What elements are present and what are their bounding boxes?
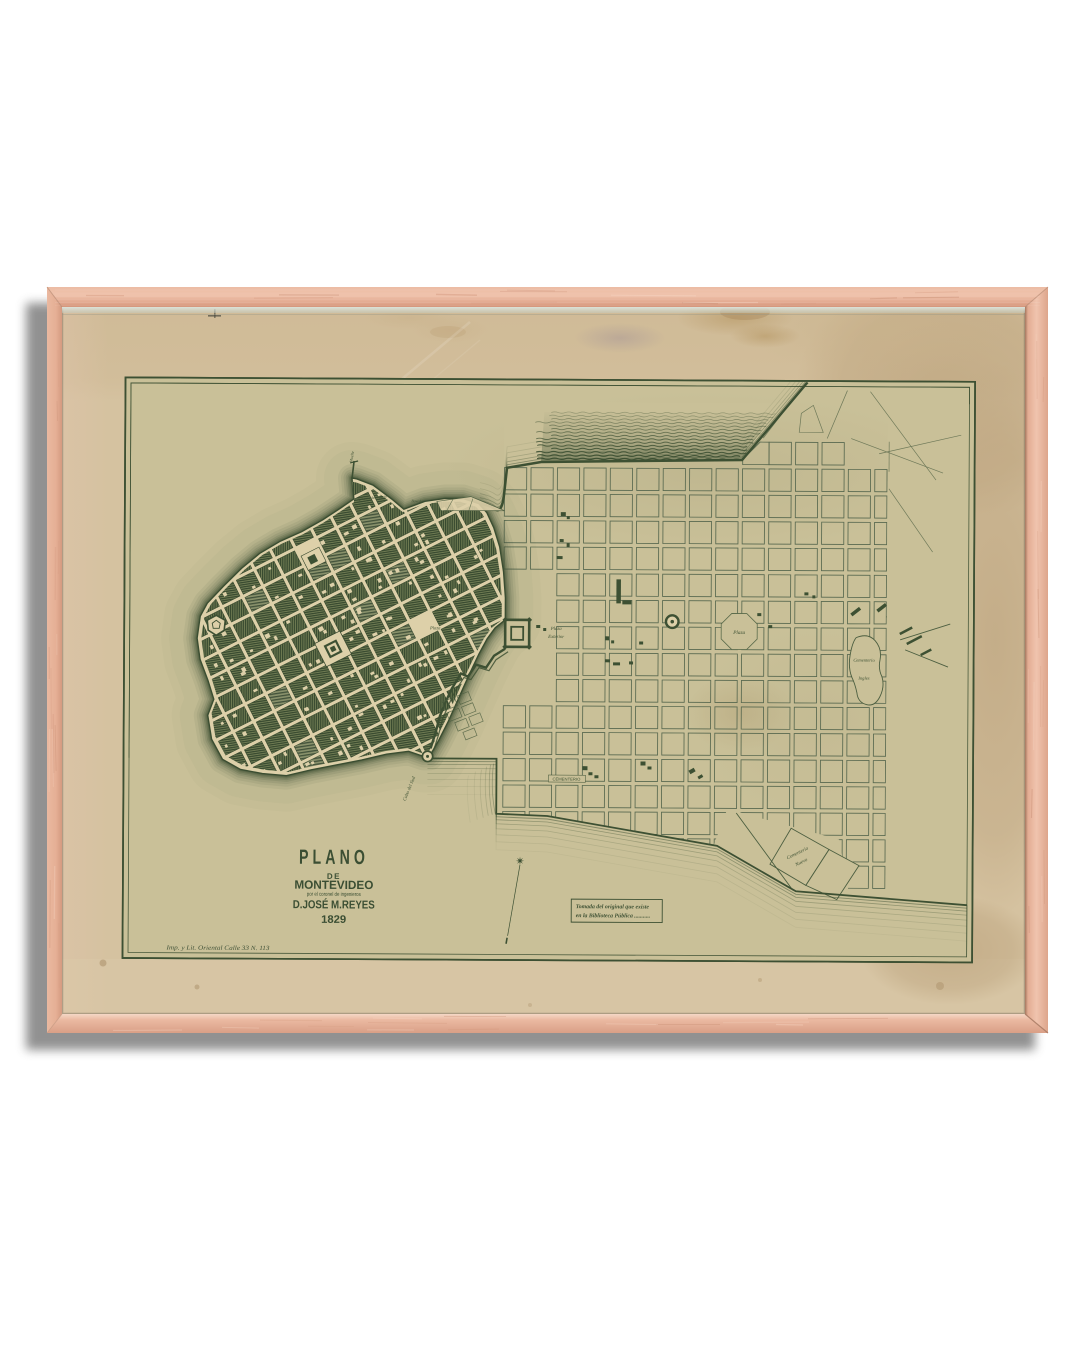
svg-text:Plaza: Plaza (429, 625, 441, 630)
svg-text:por el coronel de ingenieros: por el coronel de ingenieros (307, 892, 361, 898)
svg-text:Plaza: Plaza (732, 630, 745, 636)
svg-text:CEMENTERIO: CEMENTERIO (552, 777, 581, 782)
svg-text:D.JOSÉ M.REYES: D.JOSÉ M.REYES (293, 898, 375, 911)
svg-text:Cementerio: Cementerio (853, 658, 875, 663)
svg-text:Bovedas: Bovedas (411, 499, 424, 503)
svg-text:Ingles: Ingles (857, 676, 869, 681)
svg-text:PLANO: PLANO (299, 846, 369, 869)
svg-text:MONTEVIDEO: MONTEVIDEO (294, 878, 373, 892)
svg-text:Plaza: Plaza (550, 627, 563, 632)
svg-text:1829: 1829 (321, 914, 346, 926)
svg-text:Tomada del original que existe: Tomada del original que existe (576, 904, 650, 910)
svg-text:Imp. y Lit. Oriental Calle 33: Imp. y Lit. Oriental Calle 33 N. 113 (165, 945, 269, 953)
svg-text:en la Biblioteca Pública .....: en la Biblioteca Pública ........... (576, 913, 651, 919)
svg-text:Exterior: Exterior (547, 635, 564, 640)
